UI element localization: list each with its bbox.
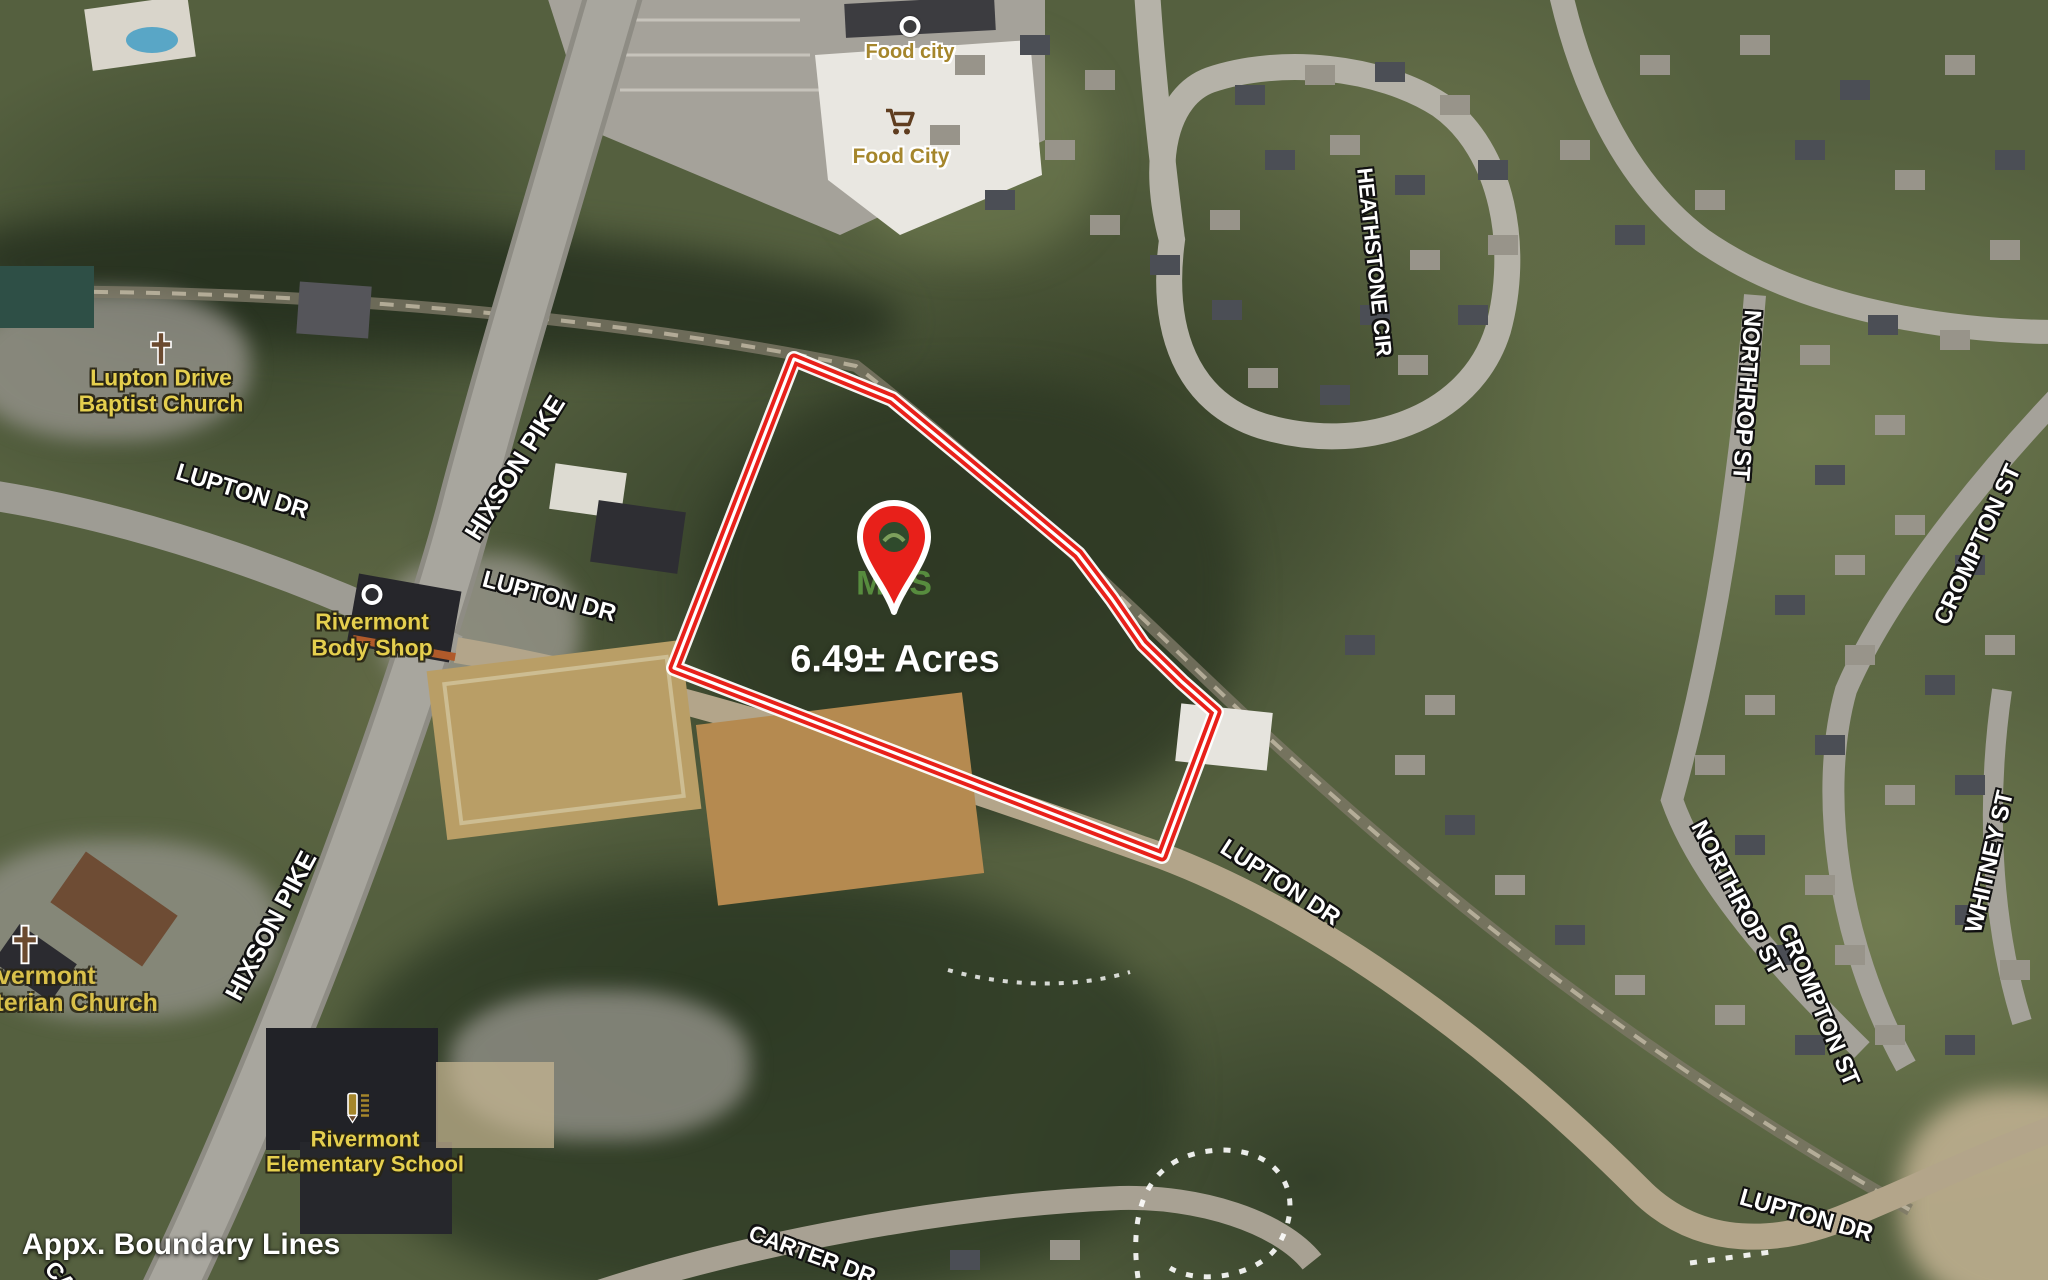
presbyterian-cross-icon [12,925,38,970]
mls-watermark: MLS [856,565,934,604]
property-boundary-core [674,359,1216,856]
location-dot-icon [900,16,921,37]
pavement-intersection [380,555,580,705]
street-label-crompton-st-south: CROMPTON ST [1771,920,1865,1091]
street-label-carter-dr: CARTER DR [745,1220,879,1280]
houses-gray [930,35,2030,1260]
road-carter [590,1198,1312,1280]
presbyterian-church-building [50,851,177,966]
street-label-partial: CA [39,1256,81,1280]
elementary-line2: Elementary School [266,1152,464,1177]
road-lupton-west [0,495,456,650]
street-label-hixson-pike-south: HIXSON PIKE [219,846,324,1006]
street-label-whitney-st: WHITNEY ST [1960,788,2020,935]
boundary-note: Appx. Boundary Lines [22,1228,340,1262]
south-woods [340,880,1180,1280]
street-label-northrop-st-north: NORTHROP ST [1726,309,1766,481]
lawn-patch [840,40,1100,260]
acreage-label: 6.49± Acres [790,639,1000,682]
body-shop-dot-icon [362,584,383,610]
body-shop-line2: Body Shop [311,635,432,661]
food-city-small-label: Food city [866,41,955,63]
body-shop-building [347,574,462,663]
road-topright [1560,0,2048,332]
street-label-heathstone-cir: HEATHSTONE CIR [1351,166,1397,357]
property-woods [700,380,1240,820]
road-lupton-east [456,650,2048,1237]
school-pencil-icon [344,1092,372,1129]
elementary-line1: Rivermont [266,1127,464,1152]
shopping-cart-icon [885,109,915,142]
gas-station [549,463,627,519]
pavement-school-lot [450,990,750,1140]
pavement-presby-lot [0,840,280,1020]
food-city-large-label: Food City [853,145,950,169]
road-northrop [1672,295,1862,1050]
tree-band [0,192,903,387]
baptist-church-line2: Baptist Church [79,391,244,417]
food-city-small-poi [900,16,921,42]
street-label-hixson-pike-north: HIXSON PIKE [458,390,571,546]
road-crompton [1833,395,2048,1066]
estate-house [84,0,196,71]
property-boundary-casing [674,359,1216,856]
road-hixson-pike [168,0,618,1280]
presbyterian-church-line1: Rivermont [0,962,96,991]
presbyterian-church-line2: Presbyterian Church [0,989,158,1018]
street-label-crompton-st-north: CROMPTON ST [1929,460,2028,629]
street-label-lupton-dr-east: LUPTON DR [1215,834,1345,932]
railroad [0,292,1910,1210]
pavement-church-lot [0,290,250,440]
body-shop-line1: Rivermont [311,609,432,635]
street-label-lupton-dr-southeast: LUPTON DR [1736,1184,1875,1249]
baptist-church-label: Lupton Drive Baptist Church [79,365,244,417]
basemap-graphics [0,0,2048,1280]
cross-icon [150,332,172,371]
trail-dashed-school [948,970,1130,984]
school-building [266,1028,438,1150]
ball-field-1 [427,640,702,840]
boundary-layer [0,0,2048,1280]
ball-field-2 [696,692,984,905]
sand-patch [1900,1090,2048,1280]
street-label-northrop-st-south: NORTHROP ST [1685,816,1790,980]
pool [126,27,178,53]
road-heathstone-cir [1162,67,1507,436]
road-heathstone-entry [1147,0,1172,240]
body-shop-label: Rivermont Body Shop [311,609,432,661]
road-whitney [1993,690,2022,1022]
aerial-map: MLS 6.49± Acres Appx. Boundary Lines HIX… [0,0,2048,1280]
property-boundary [674,359,1216,856]
elementary-school-label: Rivermont Elementary School [266,1127,464,1176]
baptist-church-line1: Lupton Drive [79,365,244,391]
street-label-lupton-dr-west: LUPTON DR [172,459,311,526]
baptist-church-building [0,266,94,328]
parking-lot [545,0,1045,235]
street-label-lupton-dr-mid: LUPTON DR [479,566,618,628]
trail-dashed-segment [1690,1251,1778,1263]
building-se [1175,703,1273,770]
houses-dark [950,35,2025,1270]
food-city-building [815,40,1042,235]
trail-dashed-loop [1136,1150,1290,1278]
